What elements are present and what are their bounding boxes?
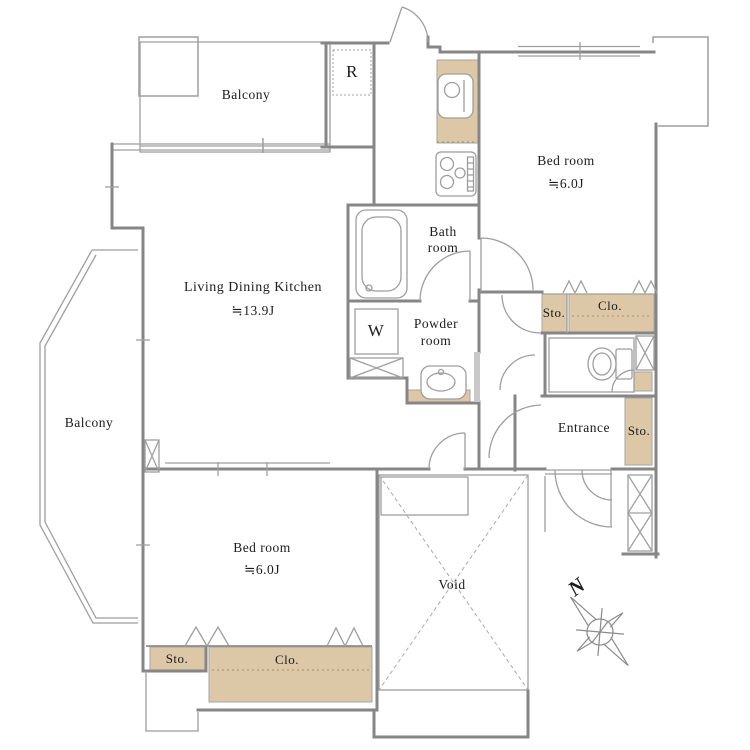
- washer-label: W: [368, 321, 385, 341]
- powder-room-label-line2: room: [421, 333, 452, 349]
- storage-bedroom-top-label: Sto.: [543, 305, 566, 321]
- void-label: Void: [438, 577, 465, 593]
- ldk-area: ≒13.9J: [231, 303, 274, 319]
- door-arcs: [390, 7, 634, 527]
- bathroom-label-line1: Bath: [429, 224, 457, 240]
- exterior-duct-recess: [653, 37, 708, 126]
- storage-entrance-label: Sto.: [628, 423, 651, 439]
- floor-plan-drawing: [0, 0, 750, 750]
- stove-icon: [436, 152, 476, 196]
- storage-bedroom-bottom-label: Sto.: [166, 651, 189, 667]
- bedroom-top-name: Bed room: [537, 153, 595, 169]
- bedroom-top-area: ≒6.0J: [548, 176, 584, 192]
- entrance-label: Entrance: [558, 420, 610, 436]
- balcony-left-outline: [40, 250, 138, 623]
- compass-rose-icon: [547, 577, 651, 685]
- refrigerator-label: R: [346, 62, 358, 82]
- washbasin-icon: [421, 352, 480, 402]
- bathtub-icon: [356, 210, 407, 298]
- washer-space: [350, 309, 403, 378]
- walls: [112, 37, 708, 737]
- closet-bedroom-top-label: Clo.: [598, 298, 622, 314]
- floor-plan-canvas: Balcony Balcony R Bed room ≒6.0J Living …: [0, 0, 750, 750]
- bedroom-bottom-area: ≒6.0J: [244, 562, 280, 578]
- balcony-top-label: Balcony: [222, 87, 271, 103]
- duct-boxes: [145, 336, 654, 551]
- kitchen-sink-icon: [438, 74, 473, 118]
- toilet-icon: [549, 338, 634, 392]
- balcony-left-label: Balcony: [65, 415, 114, 431]
- toilet-shelf-fill: [634, 372, 652, 391]
- bathroom-label-line2: room: [428, 240, 459, 256]
- balcony-pillar: [139, 37, 198, 96]
- bedroom-bottom-name: Bed room: [233, 540, 291, 556]
- powder-room-label-line1: Powder: [414, 316, 458, 332]
- closet-bedroom-bottom-label: Clo.: [275, 652, 299, 668]
- pocket-door: [474, 352, 480, 402]
- ldk-name: Living Dining Kitchen: [184, 280, 322, 296]
